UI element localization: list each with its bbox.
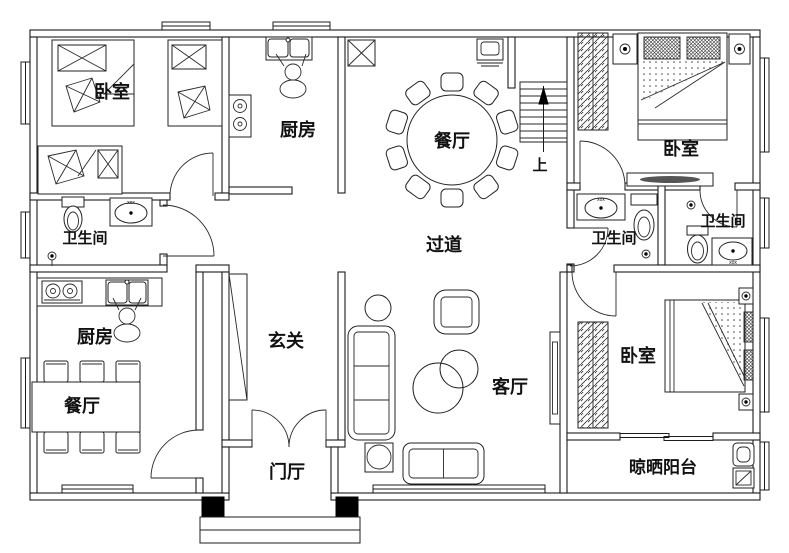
sink-icon: xox	[577, 194, 625, 220]
room-label-living: 客厅	[492, 376, 528, 397]
room-bedroom-bottom-right: 卧室	[578, 288, 753, 428]
room-bedroom-top-right: 卧室	[578, 33, 750, 186]
double-bed-icon	[638, 33, 727, 140]
window	[62, 485, 133, 493]
sofa-two-seat-icon	[403, 443, 484, 484]
floor-plan: 卧室 厨房	[0, 0, 789, 553]
round-dining-table-icon: 餐厅	[385, 73, 519, 207]
room-living: 客厅	[348, 290, 560, 484]
person-icon	[276, 54, 306, 98]
sliding-door	[620, 434, 713, 441]
floor-drain-icon	[687, 201, 695, 209]
nightstand-icon	[739, 288, 753, 304]
nightstand-icon	[729, 34, 750, 64]
window	[21, 212, 30, 258]
room-label-bathroom-right: 卫生间	[700, 212, 745, 230]
single-bed-icon	[168, 40, 222, 126]
door-swing	[163, 205, 214, 256]
room-dining-left: 餐厅	[32, 361, 140, 453]
fixture-mark: xox	[597, 197, 605, 203]
room-label-kitchen-left: 厨房	[77, 326, 113, 347]
nightstand-icon	[613, 34, 637, 64]
kitchen-sink-icon	[106, 280, 148, 305]
armchair-icon	[434, 290, 479, 334]
floor-drain-icon	[48, 252, 56, 266]
side-table-icon	[365, 443, 393, 472]
window	[373, 485, 545, 493]
single-bed-icon	[38, 146, 122, 194]
fixture-mark: xox	[127, 200, 135, 206]
side-table-icon	[365, 295, 391, 321]
room-label-entrance-hall: 玄关	[268, 330, 304, 351]
room-entrance-hall: 玄关	[229, 274, 304, 400]
stove-icon	[42, 281, 82, 303]
wardrobe-icon	[578, 322, 608, 428]
room-label-bedroom-bottom-right: 卧室	[620, 345, 656, 366]
room-bathroom-left: xox 卫生间	[48, 197, 152, 266]
door-swing	[572, 272, 616, 316]
entry-column	[202, 497, 224, 517]
shoe-cabinet-icon	[229, 274, 247, 400]
door-swing	[580, 141, 625, 186]
double-entry-door	[252, 410, 326, 447]
room-label-bedroom-top-left: 卧室	[94, 81, 130, 102]
room-label-kitchen-top: 厨房	[280, 119, 316, 140]
room-bedroom-top-left: 卧室	[38, 40, 222, 194]
entry-steps	[200, 517, 360, 543]
toilet-icon	[687, 226, 708, 263]
window	[21, 62, 30, 124]
room-dining-top: 餐厅	[348, 39, 519, 207]
room-drying-balcony: 晾晒阳台	[629, 443, 754, 488]
window	[760, 318, 769, 412]
dresser-icon	[627, 173, 713, 186]
room-label-drying-balcony: 晾晒阳台	[629, 457, 697, 477]
sofa-three-seat-icon	[348, 326, 395, 440]
sink-icon: xox	[712, 238, 752, 266]
window	[162, 22, 210, 30]
room-label-bedroom-top-right: 卧室	[663, 138, 699, 159]
fixture-mark: xox	[729, 260, 737, 266]
window	[760, 58, 769, 152]
room-label-corridor: 过道	[426, 234, 462, 255]
door-swing	[170, 153, 213, 196]
window	[760, 198, 769, 248]
washing-machine-icon	[733, 443, 754, 488]
wardrobe-icon	[578, 33, 608, 130]
entry-column	[336, 497, 358, 517]
sink-icon: xox	[110, 198, 152, 226]
tv-cabinet-icon	[550, 332, 560, 424]
tv-icon	[477, 39, 503, 66]
room-bathroom-right: xox 卫生间	[687, 201, 752, 266]
room-label-bathroom-middle: 卫生间	[591, 229, 636, 247]
toilet-icon	[62, 197, 84, 232]
window	[760, 442, 769, 490]
room-kitchen-left: 厨房	[37, 278, 162, 347]
window	[21, 358, 30, 428]
nightstand-icon	[739, 394, 753, 410]
stairs-up-label: 上	[532, 157, 547, 174]
door-swing	[151, 430, 199, 478]
stairs-icon: 上	[520, 82, 567, 174]
room-bathroom-middle: xox 卫生间	[577, 194, 657, 258]
stove-icon	[229, 95, 251, 137]
room-label-dining-top: 餐厅	[433, 130, 470, 151]
double-bed-icon	[665, 300, 753, 392]
room-label-dining-left: 餐厅	[63, 395, 100, 416]
structural-column-icon	[348, 40, 375, 66]
coffee-table-icon	[413, 350, 478, 413]
room-kitchen-top: 厨房	[229, 37, 316, 140]
floor-plan-canvas: 卧室 厨房	[0, 0, 789, 553]
room-label-bathroom-left: 卫生间	[62, 229, 107, 247]
window	[273, 22, 330, 30]
floor-drain-icon	[642, 250, 650, 258]
room-label-door-hall: 门厅	[269, 461, 305, 482]
